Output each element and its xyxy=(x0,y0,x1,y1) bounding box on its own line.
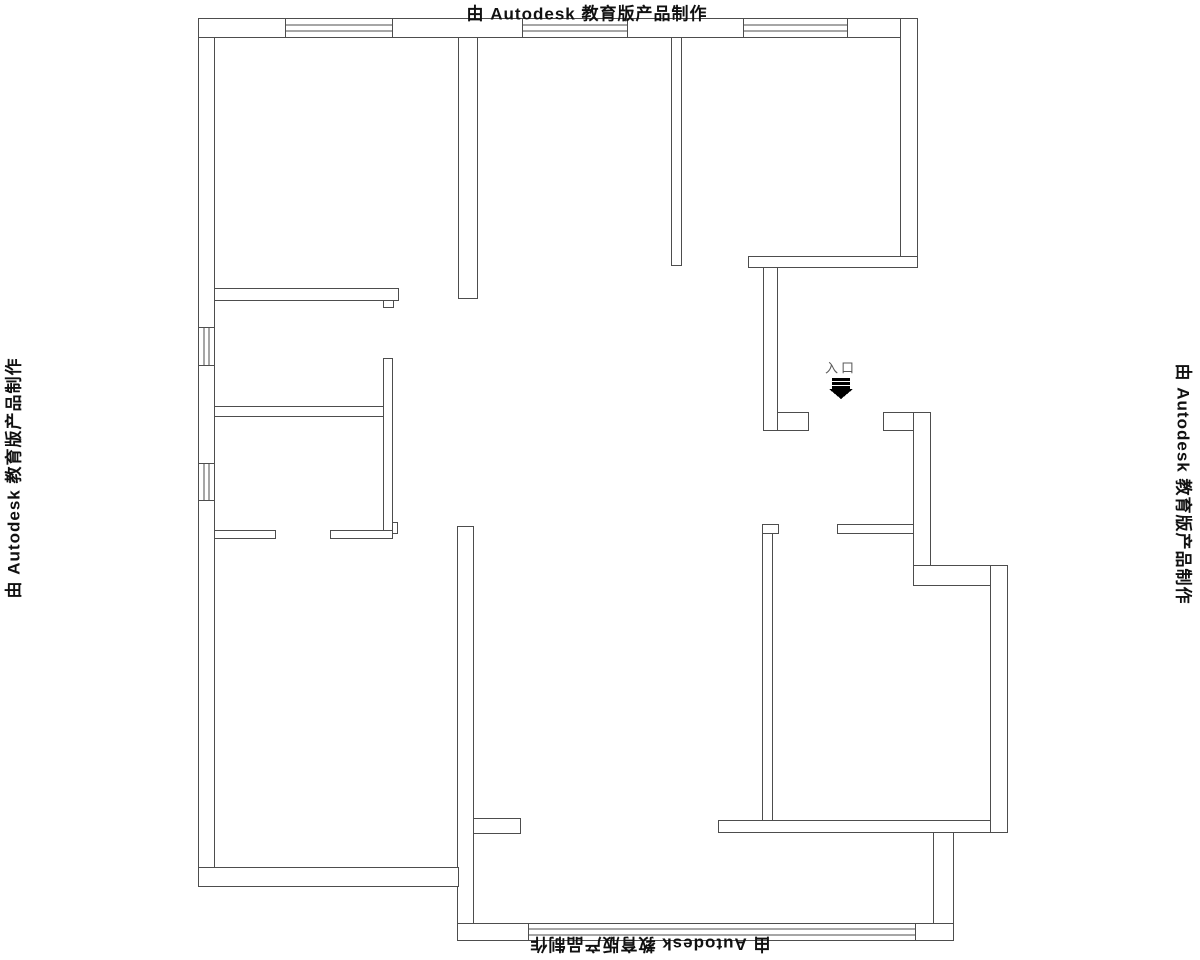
floor-plan-page: 由 Autodesk 教育版产品制作 由 Autodesk 教育版产品制作 由 … xyxy=(0,0,1200,960)
wall-segment-exterior-left-wall xyxy=(199,19,215,887)
wall-segment-exterior-bottom-wall-left xyxy=(199,868,459,887)
wall-segment-topleft-room-right-wall xyxy=(459,38,478,299)
window-left-upper xyxy=(199,328,215,366)
wall-segment-topmid-topright-partition xyxy=(672,38,682,266)
wall-segment-left-rooms-bottom-wall-b xyxy=(331,531,393,539)
watermark-right: 由 Autodesk 教育版产品制作 xyxy=(1173,364,1198,605)
wall-segment-bottomright-room-top-wall xyxy=(838,525,914,534)
wall-segment-bottomright-room-left-head xyxy=(763,525,779,534)
wall-segment-bottomright-room-left-wall xyxy=(763,525,773,821)
floor-plan-canvas xyxy=(0,0,1200,960)
wall-segment-left-rooms-divider-wall xyxy=(215,407,384,417)
wall-segment-balcony-left-wall xyxy=(458,527,474,941)
entrance-label: 入口 xyxy=(825,358,857,377)
watermark-top: 由 Autodesk 教育版产品制作 xyxy=(467,0,708,25)
wall-segment-left-rooms-bottom-wall-a xyxy=(215,531,276,539)
wall-segment-exterior-right-wall-mid xyxy=(914,413,931,566)
window-top-right xyxy=(744,19,848,38)
entrance-arrow-bar xyxy=(832,382,850,385)
wall-segment-porch-left-wall-foot xyxy=(778,413,809,431)
entrance-arrow-bar xyxy=(832,386,850,389)
wall-segment-bottomright-room-bottom-wall xyxy=(719,821,991,833)
window-top-left xyxy=(286,19,393,38)
entrance-arrow-bar xyxy=(832,378,850,381)
wall-segment-exterior-right-wall-lower xyxy=(991,566,1008,833)
entrance-arrow-icon xyxy=(829,389,853,399)
wall-segment-topleft-room-bottom-wall xyxy=(215,289,399,301)
wall-segment-balcony-left-stub xyxy=(474,819,521,834)
wall-segment-topright-room-bottom-wall xyxy=(749,257,918,268)
wall-segment-porch-left-wall xyxy=(764,268,778,431)
watermark-bottom: 由 Autodesk 教育版产品制作 xyxy=(530,934,771,959)
wall-segment-topleft-room-bottom-notch xyxy=(384,301,394,308)
wall-segment-exterior-right-wall-upper xyxy=(901,19,918,268)
window-left-lower xyxy=(199,464,215,501)
wall-segment-left-vertical-wall xyxy=(384,359,393,534)
wall-segment-left-vertical-wall-foot xyxy=(393,523,398,534)
watermark-left: 由 Autodesk 教育版产品制作 xyxy=(0,358,25,599)
